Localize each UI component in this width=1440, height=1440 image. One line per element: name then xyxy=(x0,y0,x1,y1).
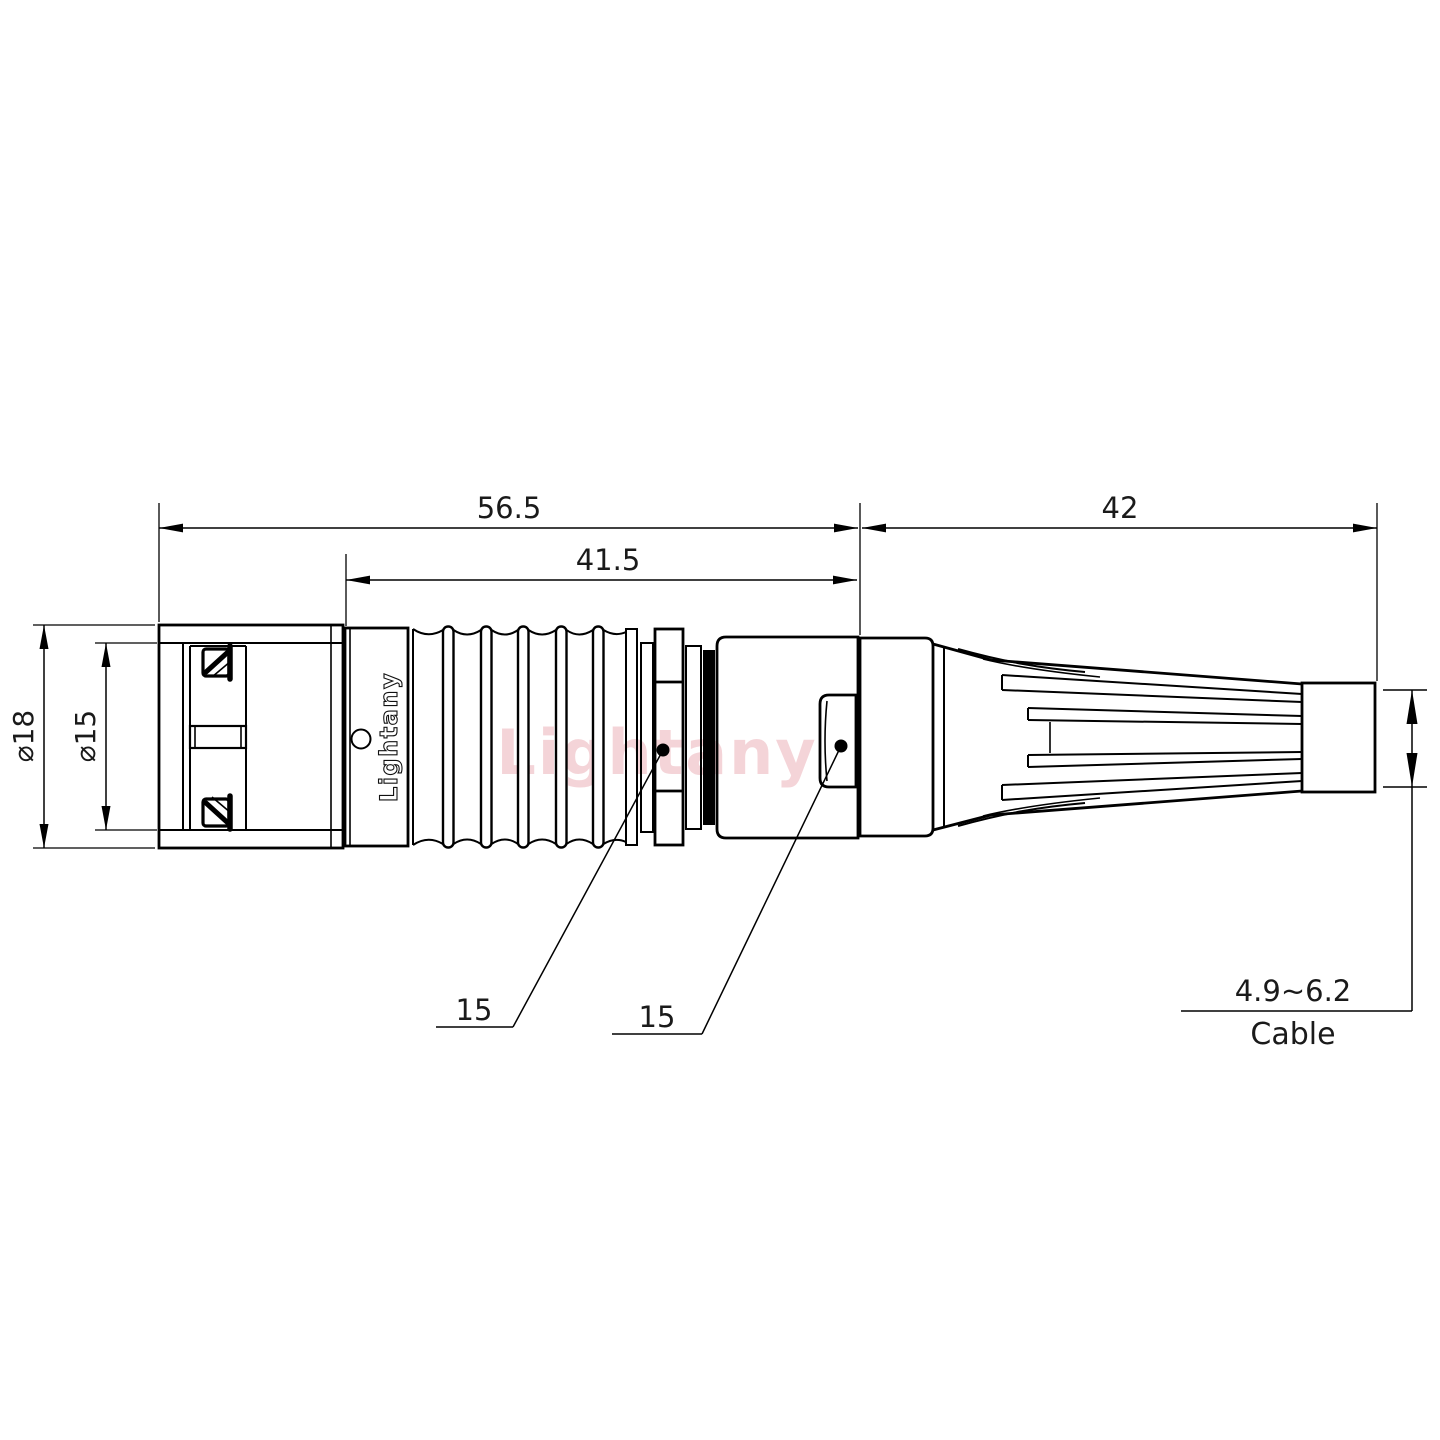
valley xyxy=(413,840,443,845)
boot-slot xyxy=(1028,752,1302,767)
leader-value: 15 xyxy=(639,1000,676,1034)
dim-value: 41.5 xyxy=(576,543,641,577)
cable-label: Cable xyxy=(1250,1017,1335,1052)
leader-value: 15 xyxy=(456,993,493,1027)
drawing-page: Lightany xyxy=(0,0,1440,1440)
arrowhead xyxy=(102,643,111,667)
arrowhead xyxy=(40,625,49,649)
dim-value: ⌀15 xyxy=(69,710,102,763)
bayonet-pin-bottom xyxy=(203,796,231,829)
boot-cone-bottom xyxy=(933,815,991,830)
grip-rib xyxy=(593,627,604,848)
boot-slot xyxy=(1002,773,1302,800)
fin-twist-line xyxy=(958,803,1085,826)
seal-ring xyxy=(703,650,715,825)
arrowhead xyxy=(1407,753,1418,787)
grip-rib xyxy=(556,627,567,848)
valley xyxy=(492,840,519,845)
grip-rib xyxy=(518,627,529,848)
body-dimple xyxy=(352,730,371,749)
valley xyxy=(529,630,557,635)
dim-boot-length: 42 xyxy=(862,491,1377,681)
arrowhead xyxy=(40,824,49,848)
main-body: Lightany xyxy=(345,628,408,846)
leader-line xyxy=(702,746,841,1034)
slot-edge xyxy=(1028,752,1302,755)
valley xyxy=(492,630,519,635)
corrugated-grip xyxy=(413,627,637,848)
valley xyxy=(454,630,482,635)
slot-edge xyxy=(1028,759,1302,767)
technical-drawing: Lightany xyxy=(0,0,1440,1440)
boot-top-edge xyxy=(991,660,1302,684)
valley xyxy=(529,840,557,845)
cable-exit-tip xyxy=(1302,683,1375,792)
valley xyxy=(413,629,443,634)
valley xyxy=(454,840,482,845)
bayonet-pin-top xyxy=(203,646,231,679)
arrowhead xyxy=(102,806,111,830)
strain-relief-boot xyxy=(933,644,1375,830)
dim-value: 42 xyxy=(1102,491,1139,525)
valley xyxy=(567,630,594,635)
back-nut xyxy=(860,638,933,836)
boot-cone-top xyxy=(933,644,991,660)
front-coupling-nut xyxy=(159,625,343,848)
arrowhead xyxy=(159,524,183,533)
body-marking-text: Lightany xyxy=(375,672,403,802)
valley xyxy=(604,630,627,634)
leader-line xyxy=(513,750,663,1027)
grip-rib xyxy=(481,627,492,848)
arrowhead xyxy=(833,576,857,585)
slot-edge xyxy=(1028,708,1302,716)
arrowhead xyxy=(862,524,886,533)
window-inner-arc xyxy=(825,701,827,781)
arrowhead xyxy=(834,524,858,533)
grip-rib xyxy=(443,627,454,848)
groove-outline xyxy=(190,726,246,748)
dim-grip-length: 41.5 xyxy=(346,543,857,626)
boot-slot xyxy=(1028,708,1302,724)
back-nut-outline xyxy=(860,638,933,836)
coupling-groove xyxy=(190,726,246,748)
dim-overall-length: 56.5 xyxy=(159,491,860,635)
arrowhead xyxy=(346,576,370,585)
front-nut-outline xyxy=(159,625,343,848)
valley xyxy=(567,840,594,845)
fin-twist-line xyxy=(958,649,1085,672)
arrowhead xyxy=(1353,524,1377,533)
dim-cable-range: 4.9~6.2 Cable xyxy=(1181,690,1427,1052)
arrowhead xyxy=(1407,690,1418,724)
cable-range-value: 4.9~6.2 xyxy=(1235,974,1352,1008)
slot-edge xyxy=(1028,720,1302,724)
boot-bottom-edge xyxy=(991,791,1302,815)
boot-slot xyxy=(1002,675,1302,702)
dim-value: ⌀18 xyxy=(7,710,40,763)
dim-value: 56.5 xyxy=(477,491,542,525)
dim-front-diameter: ⌀15 xyxy=(69,643,157,830)
